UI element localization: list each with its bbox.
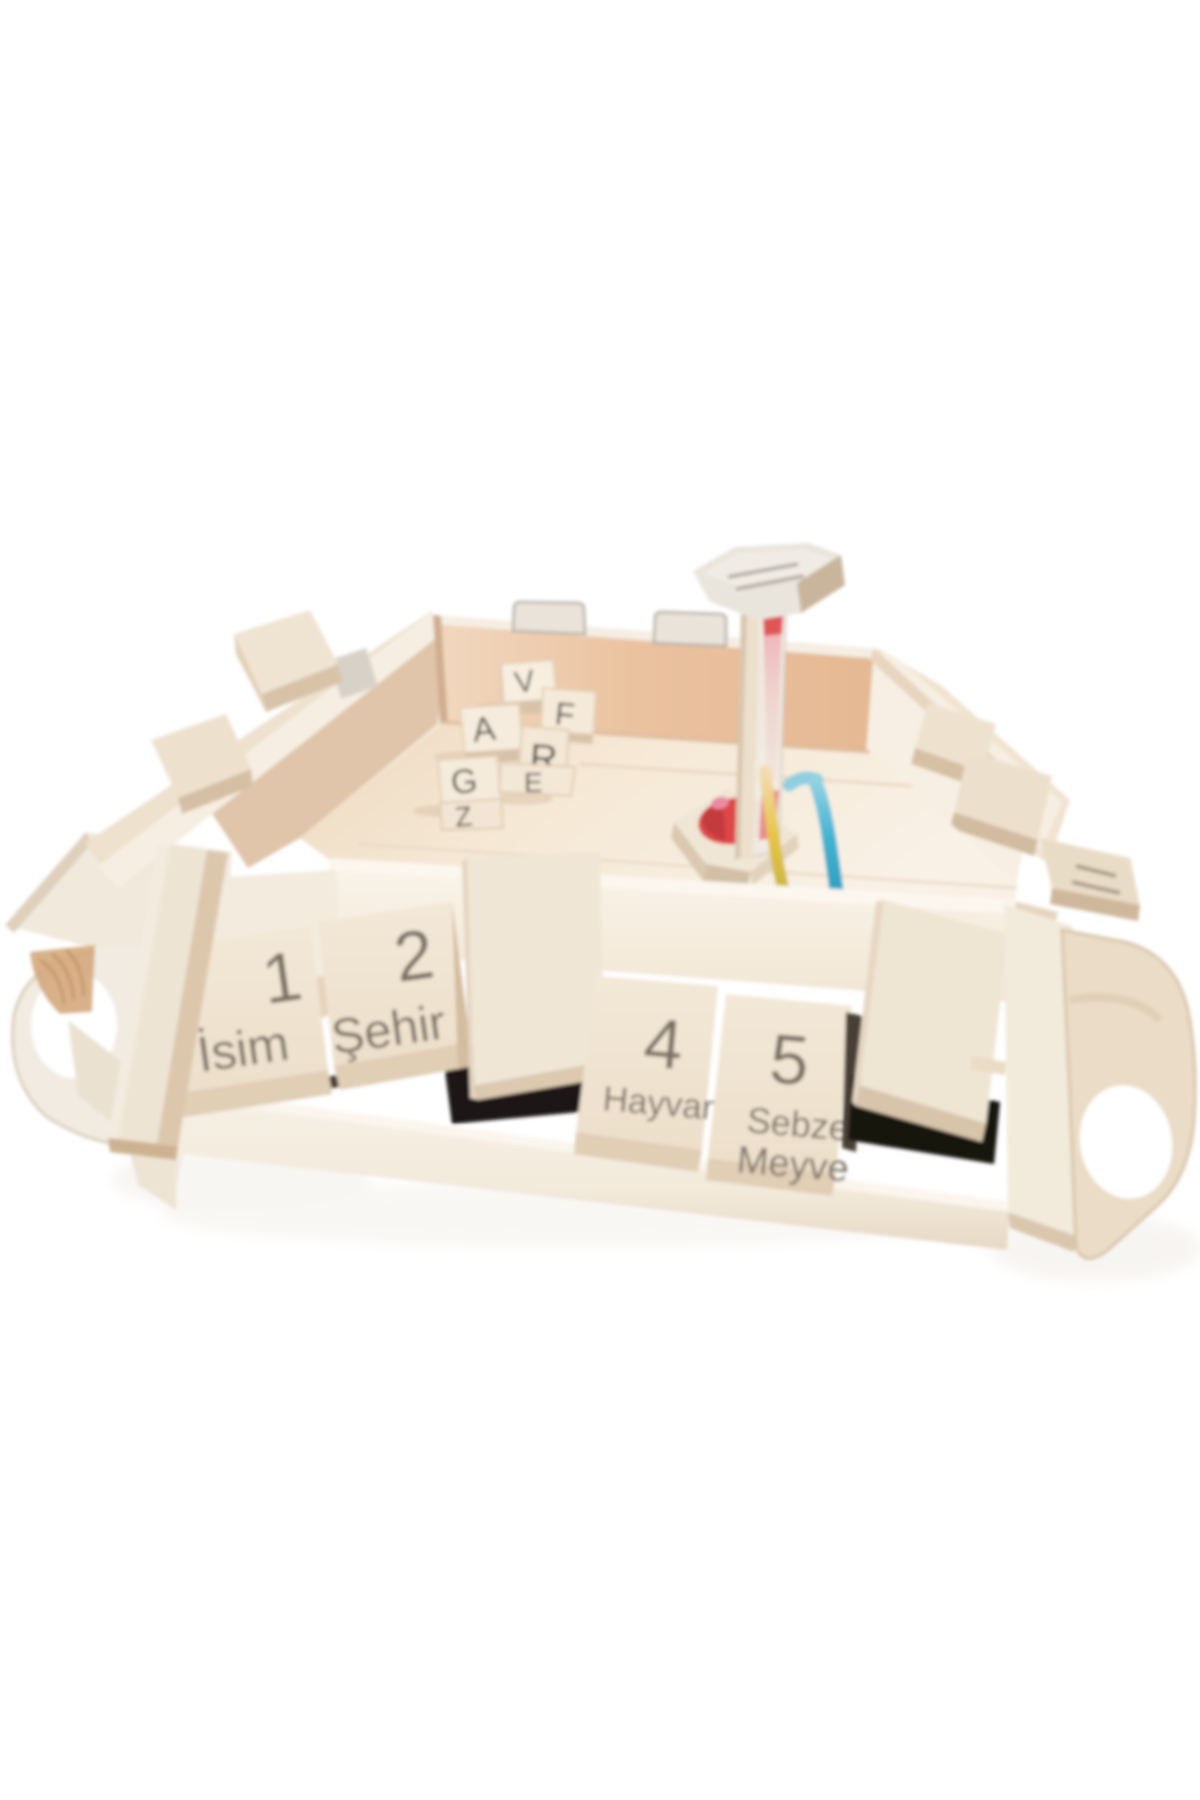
svg-text:G: G xyxy=(449,762,479,802)
svg-text:5: 5 xyxy=(767,1019,813,1100)
svg-text:Z: Z xyxy=(453,800,473,833)
svg-text:E: E xyxy=(524,767,543,798)
svg-text:F: F xyxy=(553,695,576,733)
svg-text:4: 4 xyxy=(641,1003,687,1084)
